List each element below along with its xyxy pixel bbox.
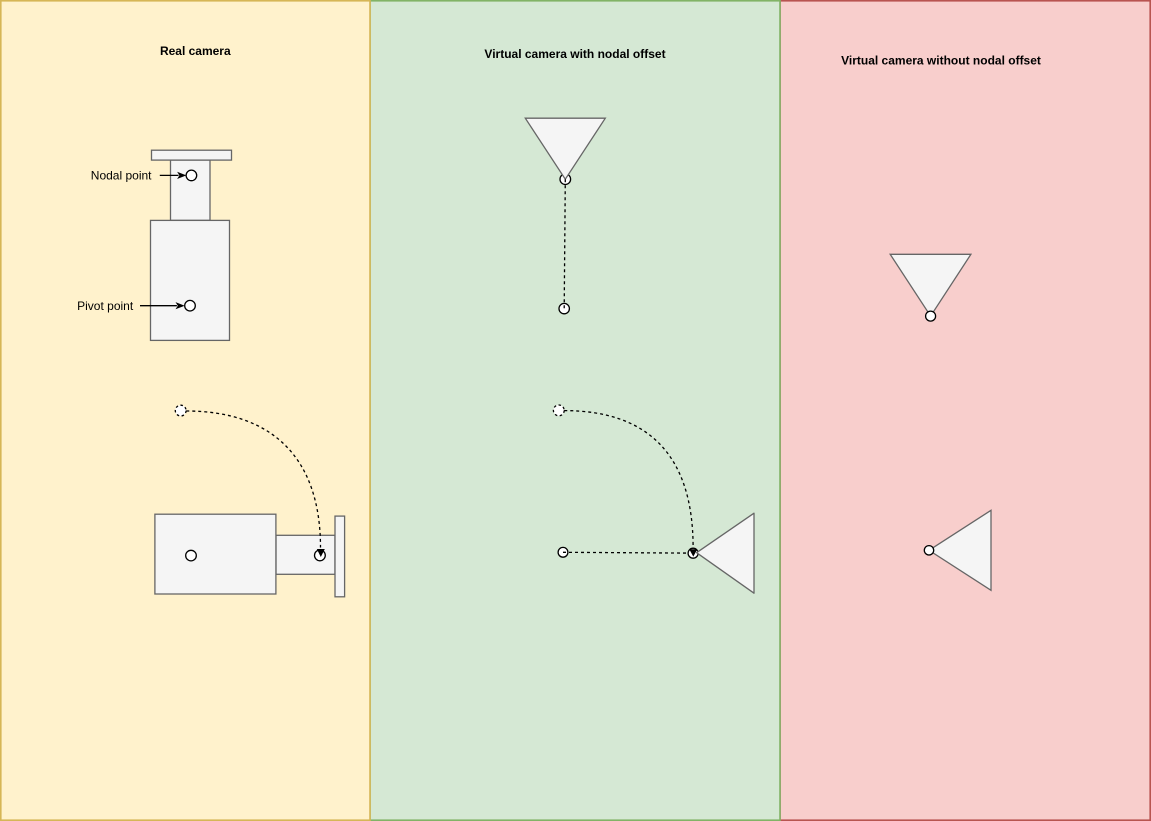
svg-text:Pivot point: Pivot point (77, 299, 134, 313)
svg-text:Real camera: Real camera (160, 44, 231, 58)
svg-text:Virtual camera without nodal o: Virtual camera without nodal offset (841, 54, 1041, 68)
svg-text:Virtual camera with nodal offs: Virtual camera with nodal offset (484, 47, 665, 61)
svg-text:Nodal point: Nodal point (91, 169, 152, 183)
